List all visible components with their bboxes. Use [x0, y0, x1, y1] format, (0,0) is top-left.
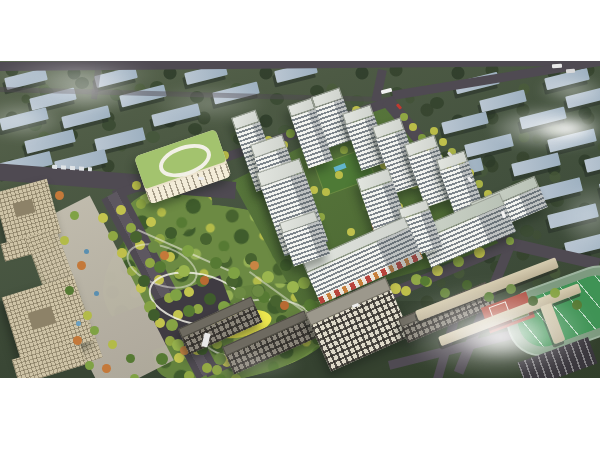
masterplan-rendering	[0, 0, 600, 450]
bus	[552, 64, 562, 69]
tree-row-northwest	[132, 181, 141, 190]
park-tree-clump	[148, 309, 160, 321]
school-trees	[420, 276, 430, 286]
park-autumn-trees	[160, 251, 169, 260]
tree-row-boulevard	[136, 199, 146, 209]
plaza-trees	[55, 191, 64, 200]
park-tree-clump	[252, 285, 264, 297]
cloud	[448, 313, 553, 361]
bus	[566, 69, 575, 74]
park-tree-clump	[210, 257, 222, 269]
tree-row-boulevard	[98, 213, 108, 223]
park-tree-clump	[130, 231, 142, 243]
plaza-canopies	[84, 249, 89, 254]
tree-row-southwest	[90, 326, 99, 335]
car	[198, 177, 204, 181]
cloud	[205, 349, 305, 378]
tree-row-boulevard	[116, 205, 126, 215]
rendering-canvas	[0, 61, 600, 378]
cloud	[536, 117, 598, 141]
cloud	[150, 83, 270, 123]
cloud	[536, 75, 600, 105]
